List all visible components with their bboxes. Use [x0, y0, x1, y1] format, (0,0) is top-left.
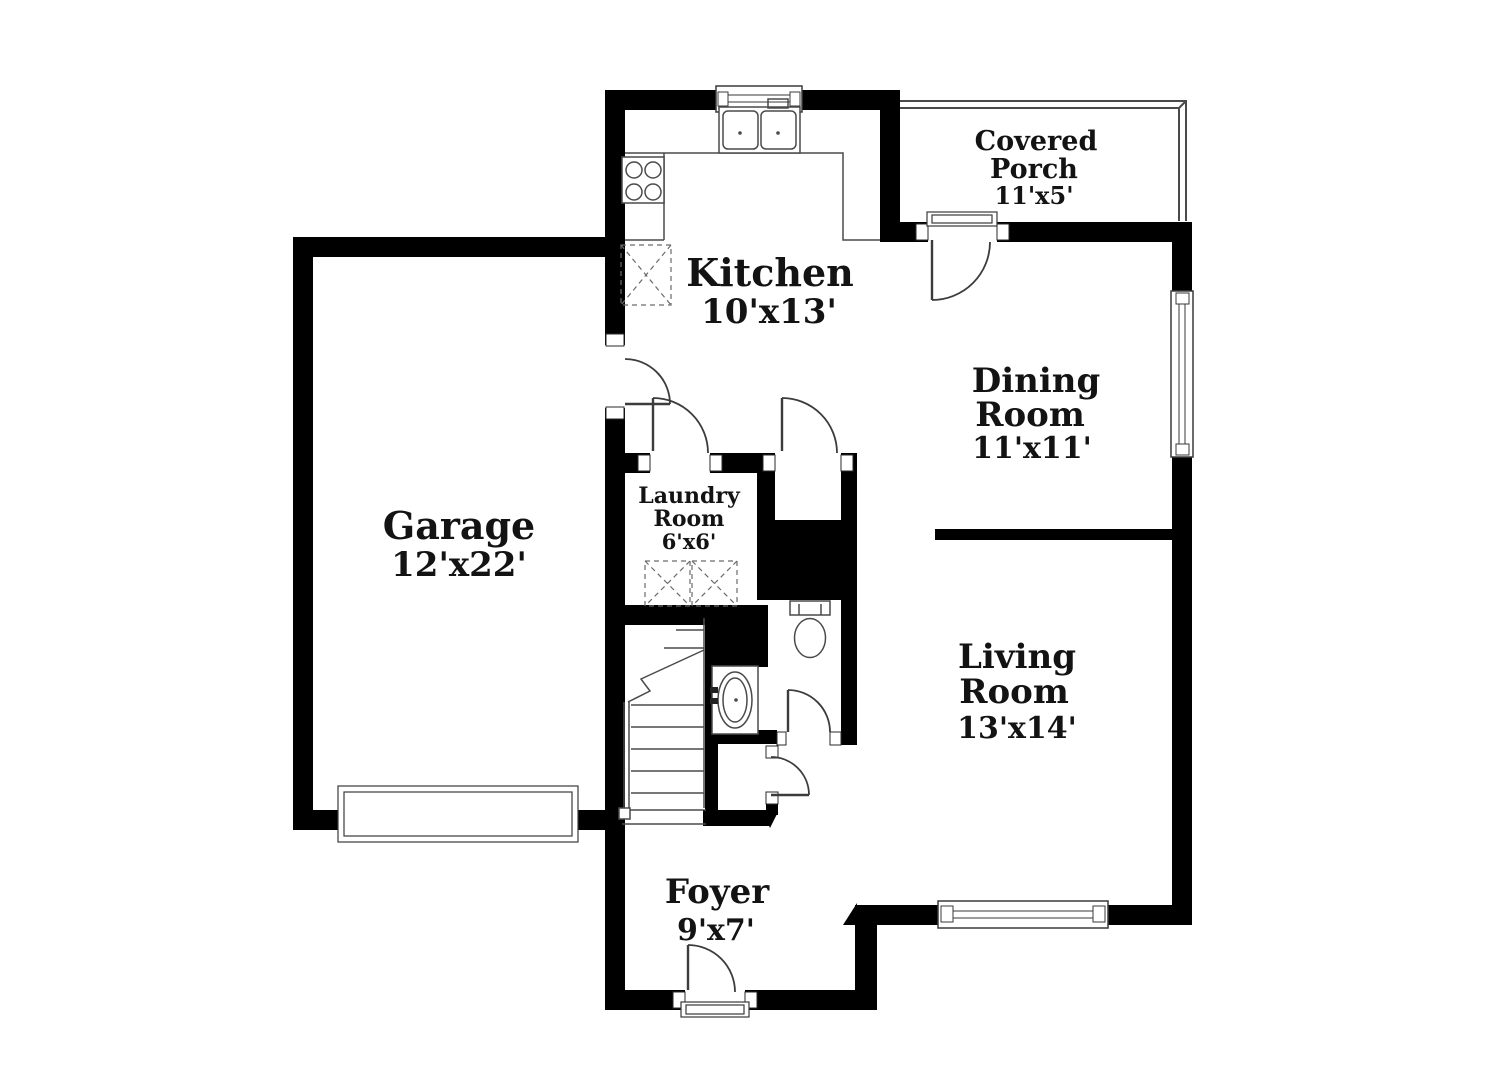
jamb: [997, 224, 1009, 240]
wall-segment: [757, 473, 775, 523]
garage-dims: 12'x22': [391, 545, 527, 585]
porch-corner-line: [1179, 101, 1186, 108]
garage-label: Garage: [383, 503, 535, 548]
window-frame: [938, 901, 1108, 928]
jamb: [841, 455, 853, 471]
wall-segment: [605, 810, 625, 1010]
garage-door-panel-inner: [344, 792, 572, 836]
jamb: [830, 732, 841, 745]
wall-segment: [605, 605, 768, 625]
wall-segment: [293, 237, 605, 257]
dining-room-dims: 11'x11': [972, 431, 1092, 466]
pantry-x: [621, 245, 671, 305]
jamb: [710, 455, 722, 471]
threshold-inner: [686, 1005, 744, 1014]
wall-segment: [855, 905, 938, 925]
wall-end-tip: [843, 903, 857, 925]
threshold-inner: [932, 215, 992, 223]
stair-railing: [624, 702, 629, 818]
floor-plan: Kitchen 10'x13' Covered Porch 11'x5' Din…: [0, 0, 1485, 1080]
jamb: [606, 407, 624, 419]
living-room-label-2: Room: [959, 672, 1069, 712]
toilet-icon: [790, 601, 830, 658]
door-swing-arc: [788, 690, 830, 732]
porch-door-threshold: [927, 212, 997, 226]
newel-post: [619, 808, 630, 819]
stair-landing-edge: [622, 810, 706, 824]
kitchen-label: Kitchen: [686, 250, 854, 295]
wall-segment: [705, 625, 768, 667]
pantry-icon: [621, 245, 671, 305]
wall-segment: [293, 810, 340, 830]
door-swing-arc: [782, 398, 837, 453]
kitchen-dims: 10'x13': [701, 292, 837, 332]
window-cap: [1093, 906, 1105, 922]
washer-icon: [645, 561, 690, 606]
jamb: [606, 334, 624, 346]
window-cap: [1176, 293, 1189, 304]
jamb: [916, 224, 928, 240]
powder-room-door: [788, 690, 830, 732]
covered-porch-label-1: Covered: [975, 126, 1098, 157]
floor-plan-drawing: Kitchen 10'x13' Covered Porch 11'x5' Din…: [0, 0, 1485, 1080]
wall-segment: [703, 810, 770, 826]
jamb: [763, 455, 775, 471]
double-sink-icon: [719, 99, 800, 153]
washer-x: [645, 561, 690, 606]
jamb: [638, 455, 650, 471]
hall-living-door: [771, 757, 809, 795]
wall-segment: [293, 237, 313, 830]
dining-window: [1171, 291, 1193, 457]
wall-segment: [605, 90, 625, 345]
door-swing-arc: [625, 359, 670, 404]
door-swing-arc: [653, 398, 708, 453]
covered-porch-dims: 11'x5': [994, 181, 1073, 210]
toilet-tank: [790, 601, 830, 615]
stove-cooktop-icon: [622, 157, 664, 203]
wall-segment: [605, 453, 625, 810]
living-room-dims: 13'x14': [957, 711, 1077, 746]
upper-stair-treads: [664, 630, 704, 648]
faucet-handle: [710, 687, 718, 693]
wall-segment: [997, 222, 1192, 242]
jamb: [777, 732, 786, 745]
dining-living-divider-wall: [935, 529, 1177, 540]
door-swing-arc: [771, 757, 809, 795]
stairs: [619, 618, 706, 824]
stair-treads: [631, 705, 704, 793]
window-cap: [790, 92, 800, 106]
door-swing-arc: [688, 945, 735, 992]
wall-segment: [880, 90, 900, 242]
garage-door: [338, 786, 578, 842]
window-cap: [941, 906, 953, 922]
laundry-room-dims: 6'x6': [662, 529, 717, 554]
porch-door: [932, 240, 990, 300]
faucet-handle: [710, 698, 718, 704]
foyer-label: Foyer: [665, 872, 770, 912]
toilet-bowl: [795, 619, 826, 658]
dining-room-label-2: Room: [975, 395, 1085, 435]
drain: [738, 131, 742, 135]
living-room-label-1: Living: [958, 637, 1076, 677]
door-swing-arc: [932, 242, 990, 300]
wall-segment: [855, 925, 877, 1010]
stair-break-line: [628, 650, 704, 702]
vanity-sink-icon: [710, 666, 758, 734]
drain: [734, 698, 738, 702]
dryer-icon: [692, 561, 737, 606]
wall-segment: [1172, 457, 1192, 925]
laundry-door: [653, 398, 708, 453]
front-door: [688, 945, 735, 992]
closet-door: [782, 398, 837, 453]
front-door-threshold: [681, 1002, 749, 1017]
window-cap: [718, 92, 728, 106]
window-cap: [1176, 444, 1189, 455]
sink-counter: [719, 107, 800, 153]
foyer-dims: 9'x7': [677, 913, 755, 948]
drain: [776, 131, 780, 135]
window-frame: [1171, 291, 1193, 457]
garage-entry-door: [625, 359, 670, 404]
dryer-x: [692, 561, 737, 606]
wall-segment: [841, 453, 857, 745]
living-window: [938, 901, 1108, 928]
